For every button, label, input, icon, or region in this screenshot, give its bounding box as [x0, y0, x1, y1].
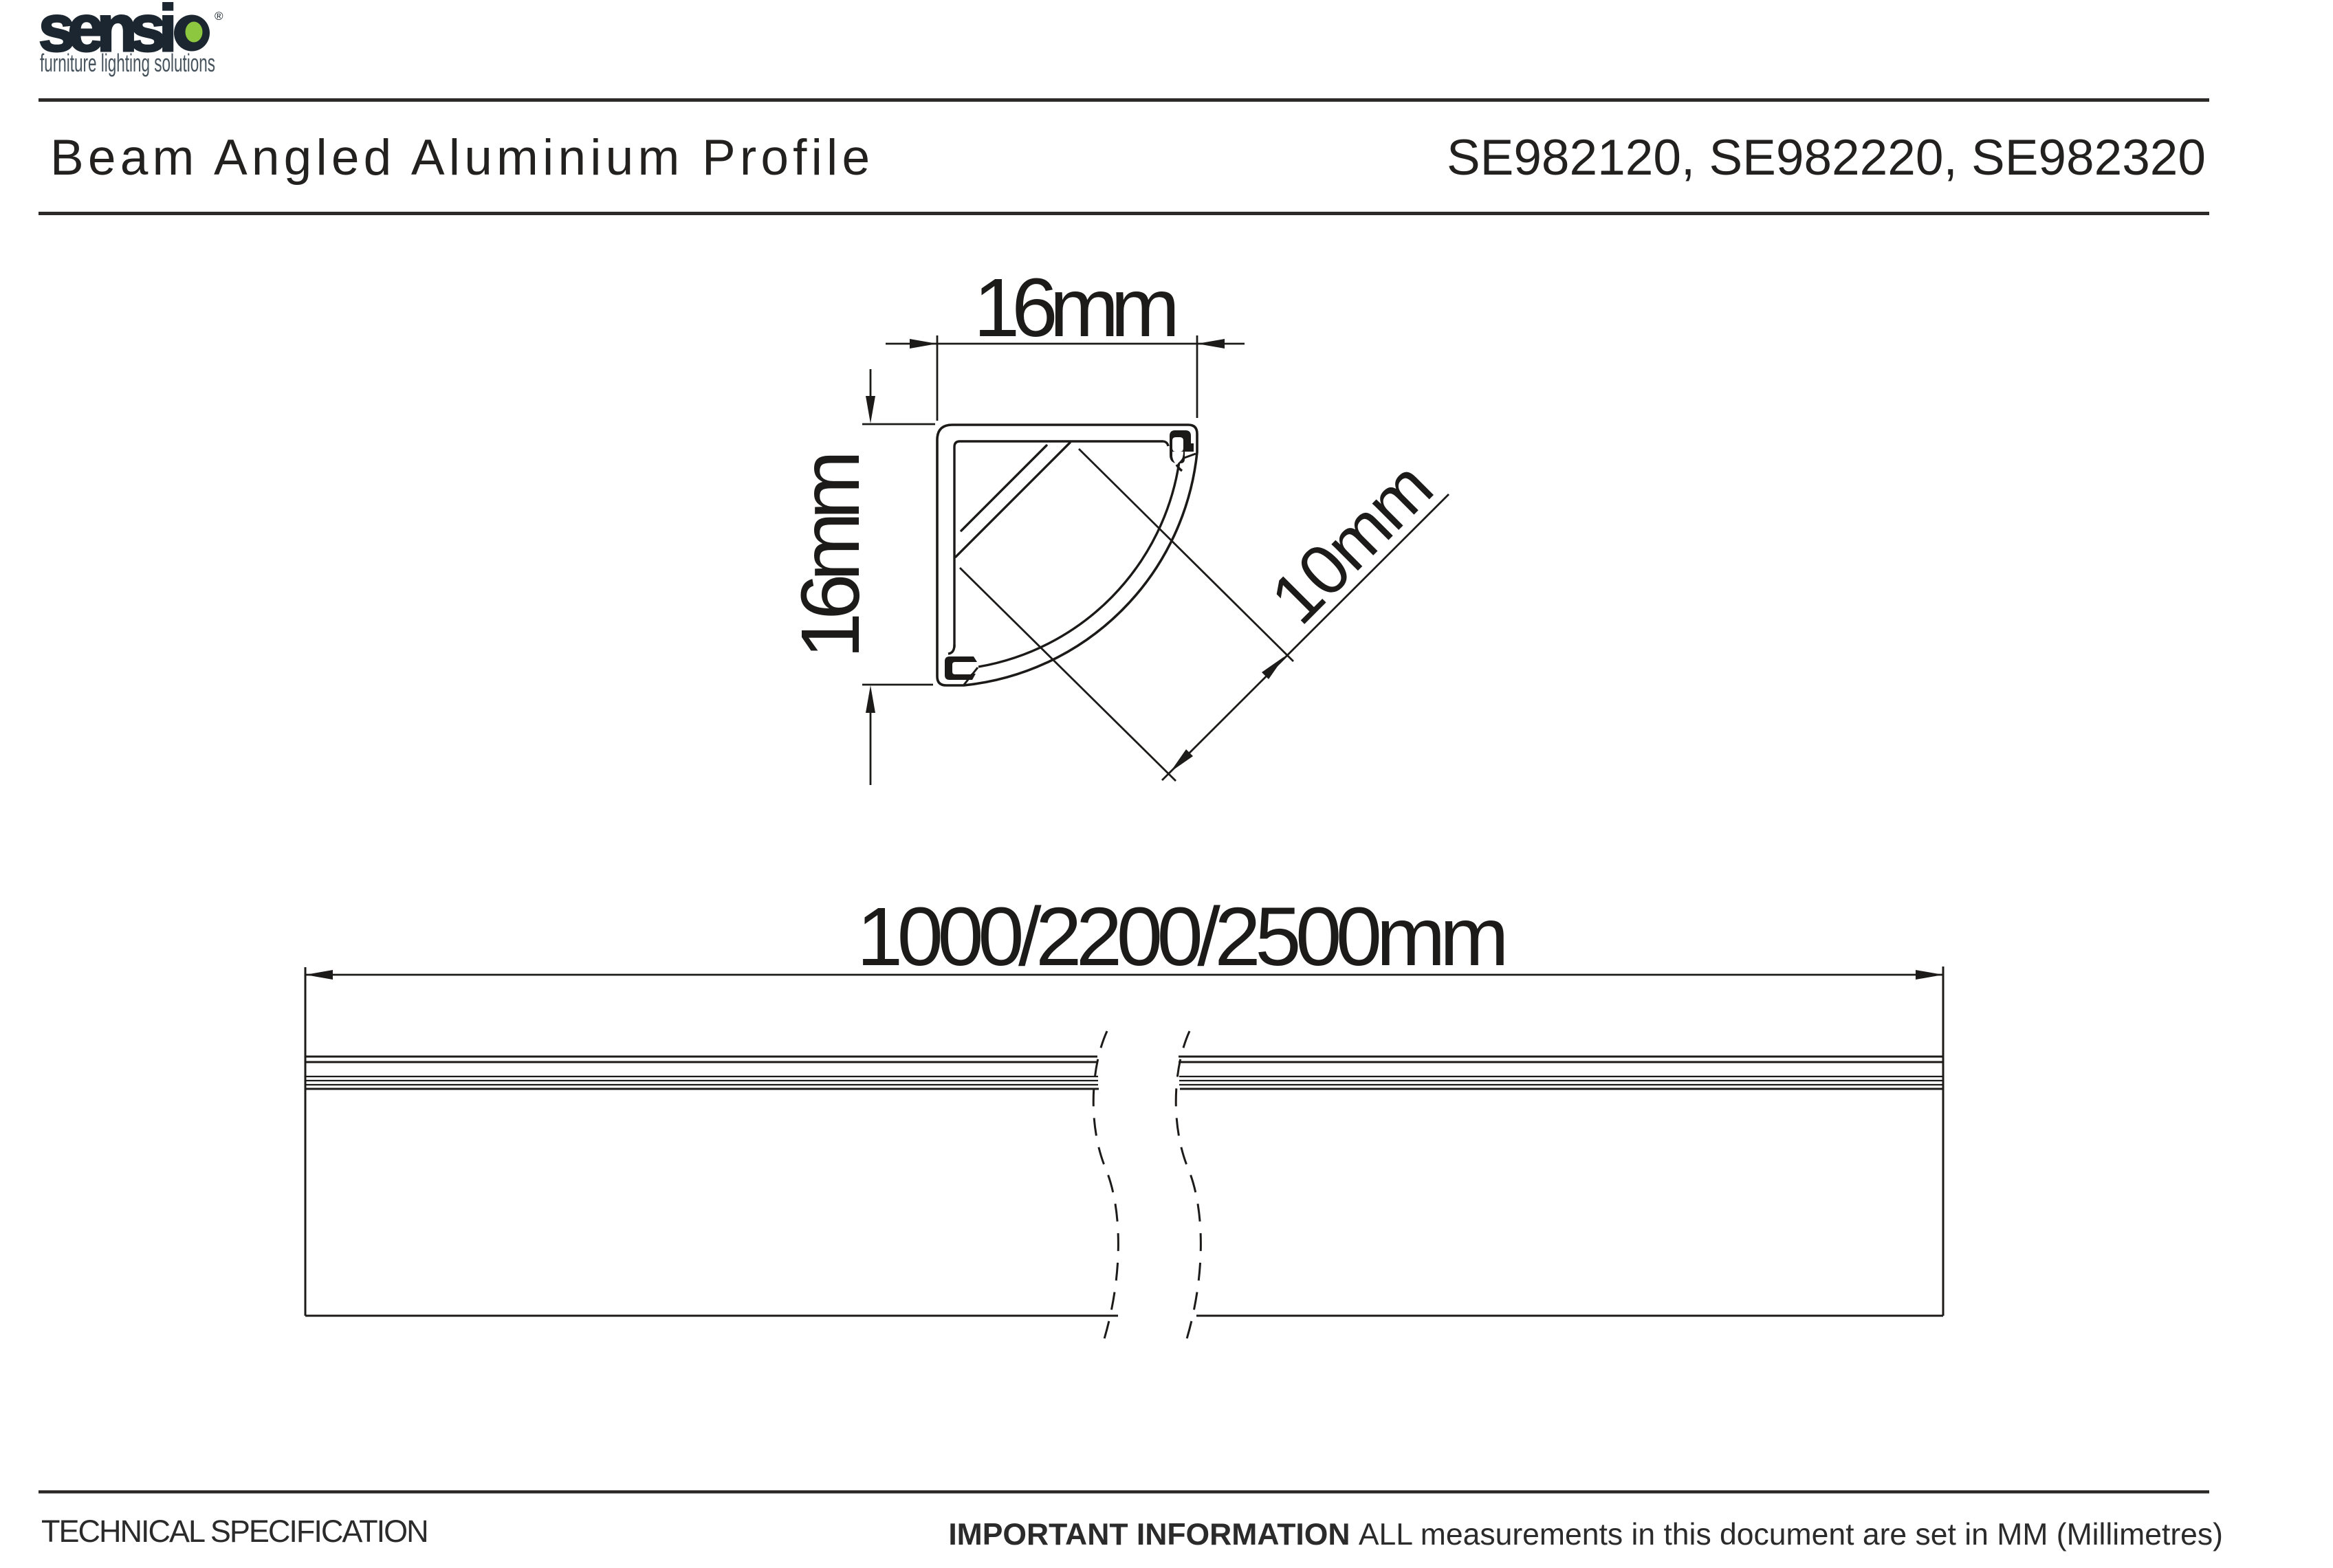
svg-text:®: ®	[215, 10, 223, 23]
svg-text:Beam Angled Aluminium Profile: Beam Angled Aluminium Profile	[50, 130, 874, 186]
svg-text:1000/2200/2500mm: 1000/2200/2500mm	[857, 890, 1504, 983]
svg-text:furniture lighting solutions: furniture lighting solutions	[40, 50, 215, 78]
svg-text:TECHNICAL SPECIFICATION: TECHNICAL SPECIFICATION	[41, 1514, 428, 1549]
svg-text:16mm: 16mm	[974, 261, 1174, 354]
svg-text:16mm: 16mm	[783, 456, 877, 659]
svg-text:IMPORTANT INFORMATION ALL meas: IMPORTANT INFORMATION ALL measurements i…	[948, 1518, 2223, 1552]
svg-text:SE982120, SE982220, SE982320: SE982120, SE982220, SE982320	[1447, 130, 2206, 186]
